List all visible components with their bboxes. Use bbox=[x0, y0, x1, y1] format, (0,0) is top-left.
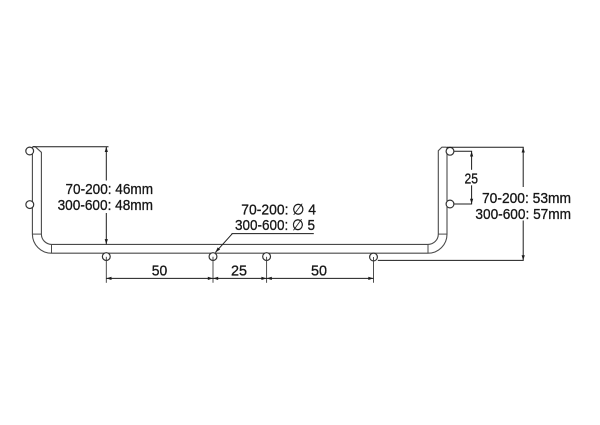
svg-text:300-600: 57mm: 300-600: 57mm bbox=[475, 206, 571, 223]
svg-text:50: 50 bbox=[311, 262, 327, 279]
svg-text:70-200: 46mm: 70-200: 46mm bbox=[66, 181, 154, 198]
svg-text:70-200: 53mm: 70-200: 53mm bbox=[482, 190, 571, 207]
svg-text:50: 50 bbox=[152, 262, 168, 279]
svg-text:25: 25 bbox=[231, 262, 247, 279]
svg-text:70-200: ∅ 4: 70-200: ∅ 4 bbox=[241, 202, 316, 219]
svg-text:300-600: 48mm: 300-600: 48mm bbox=[58, 197, 153, 214]
svg-text:25: 25 bbox=[465, 170, 479, 187]
svg-text:300-600: ∅ 5: 300-600: ∅ 5 bbox=[235, 217, 315, 234]
